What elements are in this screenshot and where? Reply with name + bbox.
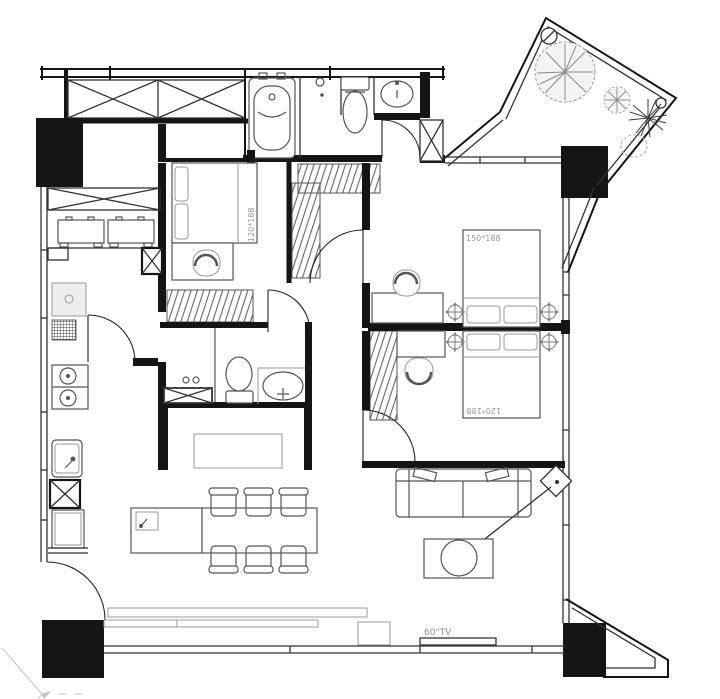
bed-3-size-label: 120*188 (247, 207, 256, 242)
bedroom-3: 120*188 (158, 150, 289, 283)
bed-2: 120*188 (463, 331, 540, 418)
light-symbol (445, 302, 465, 322)
column-bottom-left (42, 620, 104, 678)
bottom-window-wall: 60"TV (104, 608, 565, 653)
master-desk (372, 270, 443, 323)
bed-2-size-label: 120*188 (466, 406, 501, 415)
plant-medium (604, 87, 630, 113)
dining-bench (108, 608, 367, 617)
column-bottom-right (563, 623, 606, 677)
master-bed-size-label: 150*188 (466, 234, 501, 243)
shaft-kitchen-bottom (50, 480, 80, 508)
dryer-unit (108, 217, 154, 247)
light-symbol (445, 332, 465, 352)
stove (52, 365, 88, 409)
laundry-sink (52, 283, 86, 316)
toilet-main (341, 77, 369, 133)
drain-grate (52, 320, 76, 340)
bathtub (249, 73, 295, 158)
vanity-cabinet (164, 388, 212, 403)
wardrobe-hall-side (292, 183, 320, 278)
bathroom-main (243, 70, 420, 162)
floor-plan-canvas: 60"TV (0, 0, 720, 699)
tv-60-inch (420, 638, 496, 645)
kitchen-door (88, 315, 158, 366)
shower-valve (183, 377, 189, 383)
coffee-table (424, 539, 493, 578)
cabinet-nook (160, 408, 312, 470)
kitchen (48, 163, 166, 553)
shaft-kitchen-top (142, 248, 162, 274)
wardrobe-bedroom2 (370, 331, 397, 420)
sink-main (381, 81, 413, 107)
desk-3 (172, 243, 233, 280)
tv-label: 60"TV (424, 628, 452, 638)
washer-unit (58, 217, 104, 247)
sofa (396, 467, 531, 517)
shower-head-icon (316, 78, 324, 97)
dining-area (131, 488, 317, 573)
column-top-left (36, 118, 83, 187)
light-symbol (539, 302, 559, 322)
service-balcony (48, 188, 162, 274)
right-window-wall (561, 198, 570, 623)
toilet-2 (226, 357, 253, 403)
sink-2 (258, 368, 305, 404)
master-bedroom: 150*188 (310, 230, 540, 327)
shaft-entry (420, 120, 443, 161)
living-room (396, 465, 572, 578)
balcony-door-arc (47, 562, 105, 620)
master-bed: 150*188 (463, 230, 540, 327)
wardrobe-bedroom3 (167, 290, 253, 322)
top-hatched-platform (68, 80, 245, 118)
kitchen-island (131, 508, 202, 553)
bed-3: 120*188 (172, 163, 257, 243)
storage-cabinet (194, 434, 282, 468)
bathroom-main-door (382, 120, 420, 158)
shower-valve (193, 377, 199, 383)
garden-post-right (656, 98, 666, 108)
kitchen-sink (52, 440, 82, 477)
fridge (48, 510, 88, 553)
desk-2 (397, 331, 445, 384)
light-symbol (539, 332, 559, 352)
bathroom-2-door (268, 290, 310, 332)
floor-plan-drawing: 60"TV (0, 0, 720, 699)
planter-box (358, 622, 390, 645)
plant-large (535, 42, 595, 102)
